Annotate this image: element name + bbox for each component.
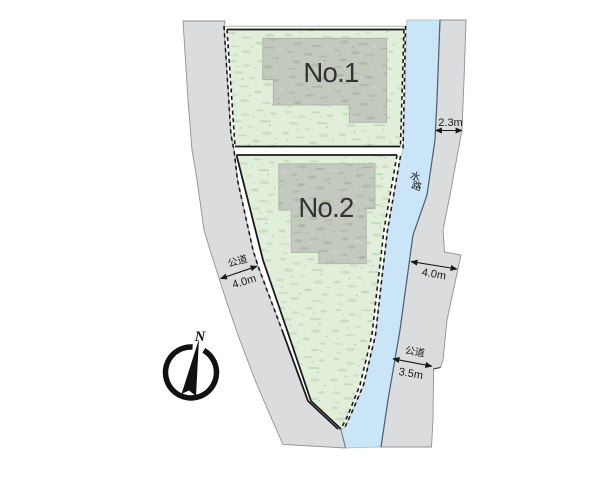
svg-text:2.3m: 2.3m [438, 117, 462, 129]
svg-text:N: N [194, 329, 206, 345]
svg-text:No.2: No.2 [298, 192, 353, 223]
svg-text:No.1: No.1 [303, 57, 358, 88]
